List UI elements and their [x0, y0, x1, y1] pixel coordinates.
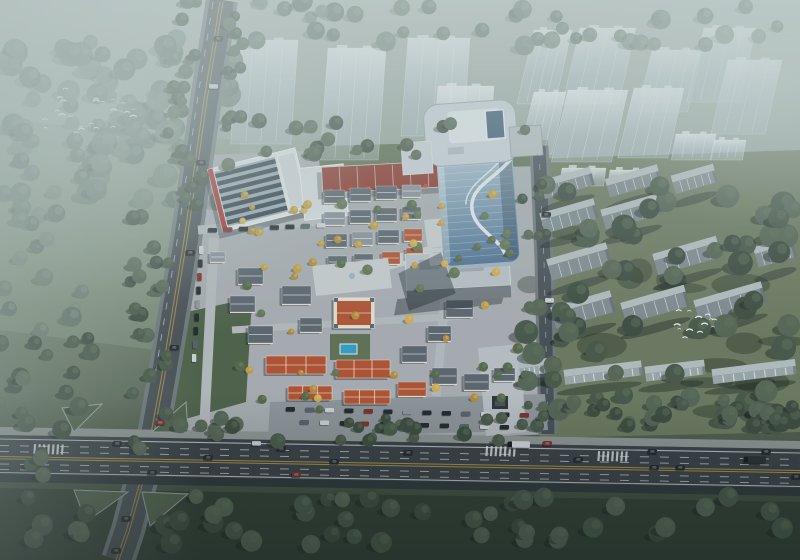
rendering-canvas — [0, 0, 800, 560]
aerial-rendering — [0, 0, 800, 560]
teal-tint — [0, 0, 800, 560]
fog-overlay — [0, 0, 800, 560]
